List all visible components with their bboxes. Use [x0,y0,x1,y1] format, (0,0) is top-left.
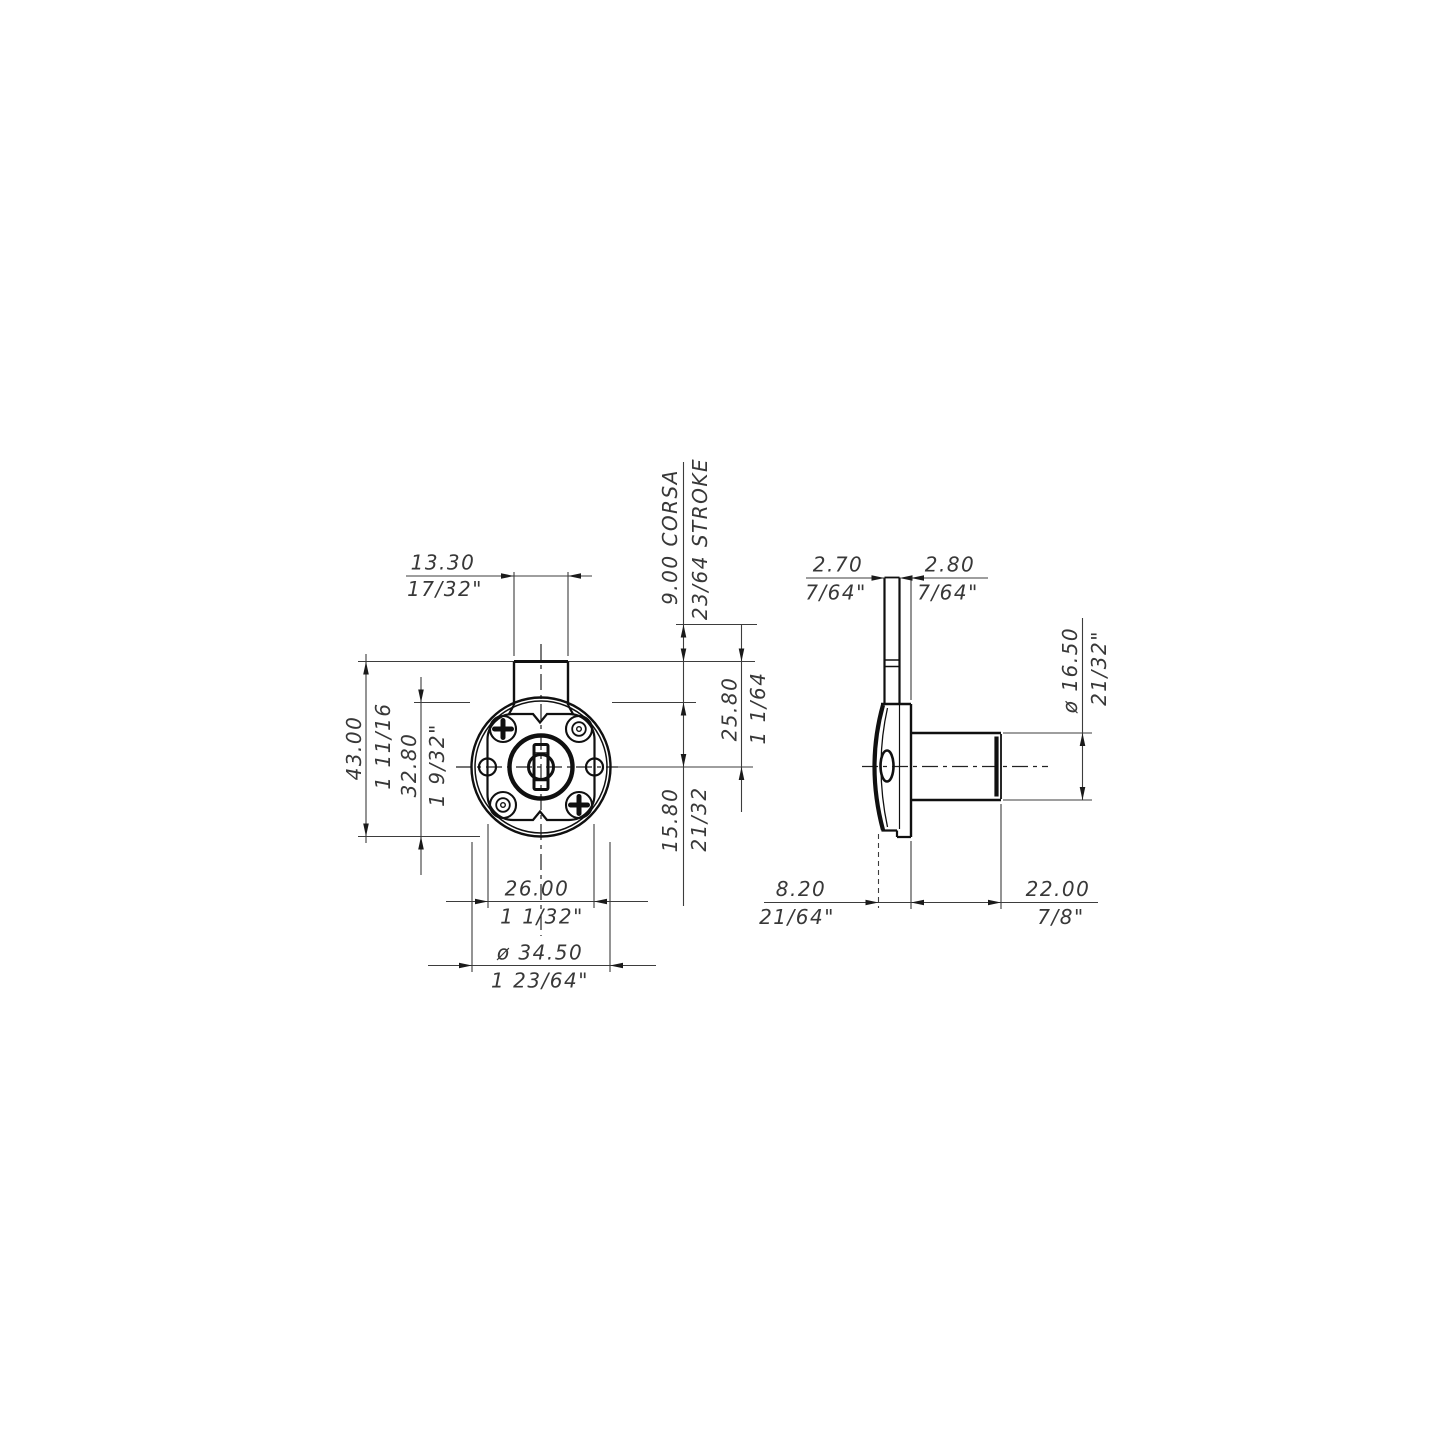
side-view: 2.70 7/64" 2.80 7/64" ø 16.50 21/32" 8.2… [759,553,1111,930]
dim-barrel-length-mm: 22.00 [1026,877,1091,901]
pin-icon [577,727,582,732]
dim-body-height-in: 1 9/32" [425,723,449,807]
flange [875,704,912,837]
dim-total-height-mm: 43.00 [342,716,366,781]
lock-side-body [875,578,1002,909]
dim-latch-offset: 2.80 7/64" [911,553,988,605]
dim-hole-spacing: 26.00 1 1/32" [446,877,648,929]
dim-body-depth-in: 21/64" [759,905,835,929]
dim-barrel-diameter-in: 21/32" [1087,630,1111,706]
dim-outer-diameter: ø 34.50 1 23/64" [428,941,656,993]
dim-barrel-diameter-mm: ø 16.50 [1058,627,1082,714]
dim-neck-width-in: 17/32" [407,577,483,601]
dim-latch-thickness-in: 7/64" [805,581,867,605]
dim-latch-offset-mm: 2.80 [925,553,976,577]
phillips-cross-icon [495,721,512,738]
dim-outer-diameter-mm: ø 34.50 [496,941,583,965]
dim-total-height-in: 1 11/16 [371,702,395,789]
screw-bottom-left [490,792,516,818]
dim-body-depth-and-barrel-length: 8.20 21/64" 22.00 7/8" [759,877,1098,929]
dim-body-depth-mm: 8.20 [776,877,827,901]
dim-barrel-diameter: ø 16.50 21/32" [1058,618,1111,800]
latch-rod [885,578,900,705]
front-view: 13.30 17/32" 43.00 1 11/16 32.80 1 9/32" [342,458,770,993]
dim-center-to-face-in: 21/32 [687,786,711,851]
dim-stroke-mm: 9.00 CORSA [658,469,682,605]
dim-latch-thickness-mm: 2.70 [813,553,864,577]
pin-icon [501,803,506,808]
dim-center-to-top: 25.80 1 1/64 [718,625,771,813]
dim-center-to-top-in: 1 1/64 [746,672,770,745]
drawing-canvas: 13.30 17/32" 43.00 1 11/16 32.80 1 9/32" [0,0,1440,1440]
dim-neck-width-mm: 13.30 [411,551,476,575]
dim-neck-width: 13.30 17/32" [406,551,592,602]
dim-barrel-length-in: 7/8" [1037,905,1084,929]
dim-center-to-top-mm: 25.80 [718,677,742,742]
dim-total-height: 43.00 1 11/16 [342,654,395,843]
dim-outer-diameter-in: 1 23/64" [491,969,589,993]
technical-drawing: 13.30 17/32" 43.00 1 11/16 32.80 1 9/32" [0,0,1440,1440]
dim-body-height-mm: 32.80 [397,733,421,798]
screw-bottom-right [566,792,592,818]
dim-stroke-and-face: 9.00 CORSA 23/64 STROKE 15.80 21/32 [658,458,712,906]
dim-center-to-face-mm: 15.80 [658,788,682,853]
phillips-cross-icon [571,797,588,814]
dim-stroke-in: 23/64 STROKE [688,458,712,620]
dim-hole-spacing-in: 1 1/32" [500,905,584,929]
dim-hole-spacing-mm: 26.00 [505,877,570,901]
screw-top-left [490,716,516,742]
dim-body-height: 32.80 1 9/32" [397,677,449,875]
dim-latch-thickness: 2.70 7/64" [805,553,912,605]
screw-top-right [566,716,592,742]
dim-latch-offset-in: 7/64" [917,581,979,605]
